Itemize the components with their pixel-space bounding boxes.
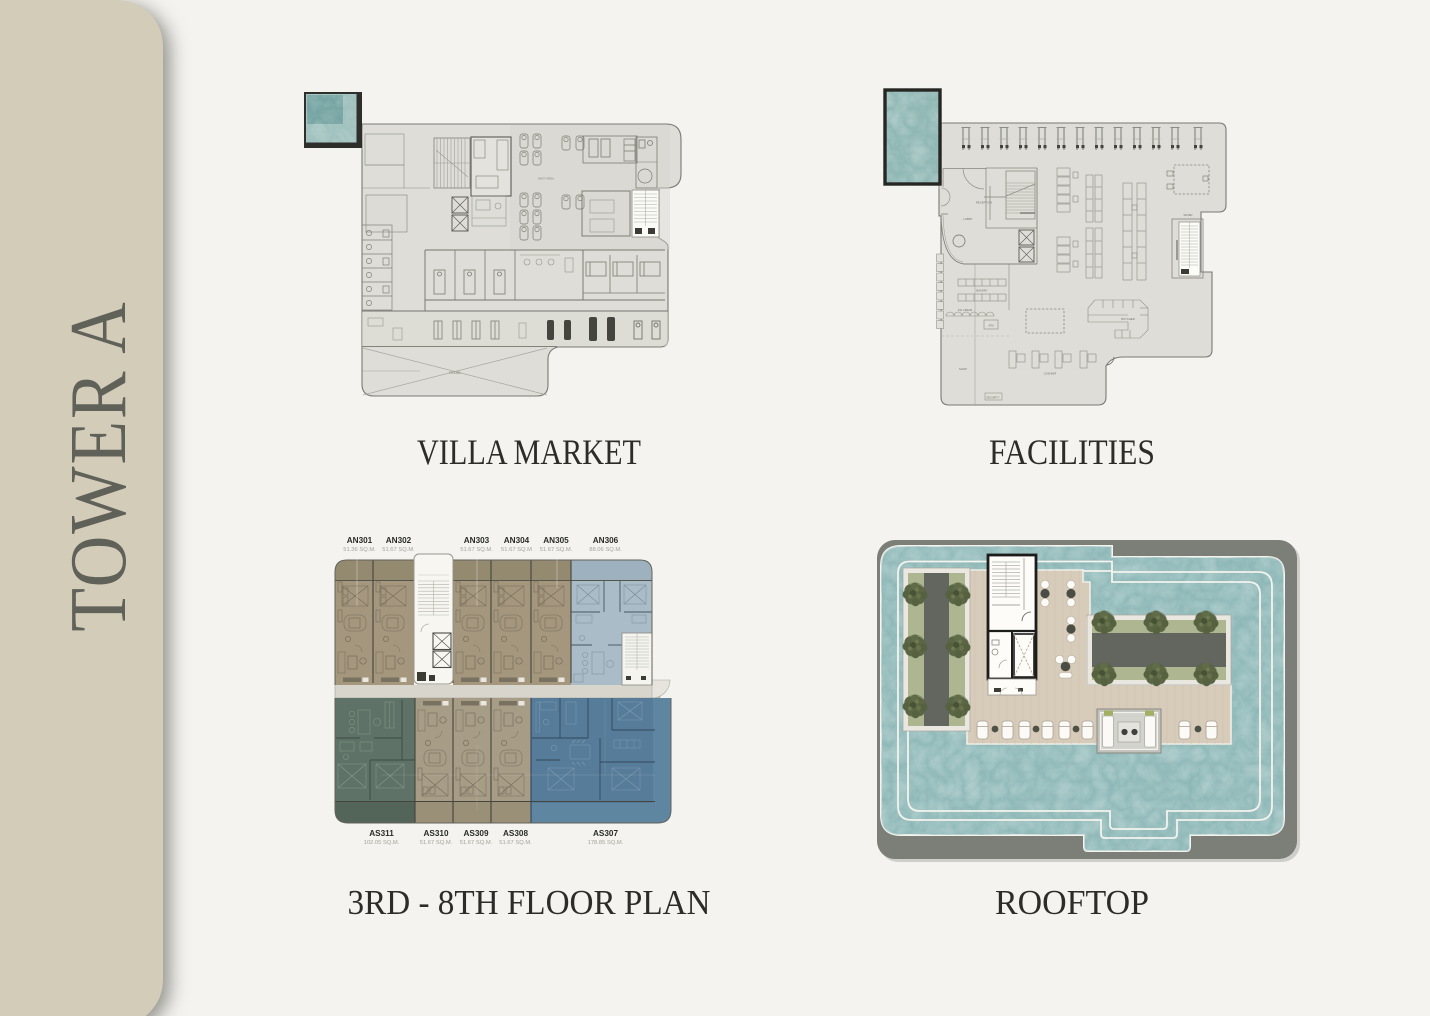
svg-text:RECEPTION: RECEPTION [976, 201, 992, 205]
svg-text:LOBBY: LOBBY [963, 217, 972, 221]
svg-text:ICE CREAM: ICE CREAM [958, 308, 972, 312]
svg-text:88.06 SQ.M.: 88.06 SQ.M. [589, 547, 622, 553]
svg-text:51.67 SQ.M.: 51.67 SQ.M. [420, 840, 453, 846]
svg-text:SHOP: SHOP [959, 367, 967, 371]
svg-text:51.67 SQ.M: 51.67 SQ.M [501, 547, 532, 553]
svg-text:CASHIER: CASHIER [1044, 372, 1056, 376]
svg-text:VILLA MARKET: VILLA MARKET [417, 432, 641, 472]
svg-text:AN306: AN306 [593, 536, 619, 545]
svg-text:ROAD: ROAD [449, 370, 461, 375]
svg-text:AS307: AS307 [593, 829, 618, 838]
svg-text:AN303: AN303 [464, 536, 490, 545]
svg-text:AN301: AN301 [347, 536, 373, 545]
svg-text:51.67 SQ.M.: 51.67 SQ.M. [499, 840, 532, 846]
svg-text:51.67 SQ.M.: 51.67 SQ.M. [460, 547, 493, 553]
svg-text:51.67 SQ.M.: 51.67 SQ.M. [540, 547, 573, 553]
svg-text:AS310: AS310 [423, 829, 448, 838]
svg-text:AS311: AS311 [369, 829, 394, 838]
svg-text:51.67 SQ.M.: 51.67 SQ.M. [382, 547, 415, 553]
svg-text:3RD - 8TH FLOOR PLAN: 3RD - 8TH FLOOR PLAN [348, 883, 711, 922]
svg-text:AS308: AS308 [503, 829, 528, 838]
svg-text:102.05 SQ.M.: 102.05 SQ.M. [364, 840, 400, 846]
svg-text:51.36 SQ.M.: 51.36 SQ.M. [343, 547, 376, 553]
svg-text:AS309: AS309 [463, 829, 488, 838]
svg-text:WATER: WATER [1183, 213, 1192, 217]
svg-text:51.67 SQ.M.: 51.67 SQ.M. [460, 840, 493, 846]
svg-text:ATM: ATM [988, 324, 993, 328]
svg-text:ROOFTOP: ROOFTOP [995, 883, 1149, 922]
svg-text:BUTCHER: BUTCHER [1121, 317, 1135, 321]
svg-text:FACILITIES: FACILITIES [989, 432, 1155, 472]
svg-text:178.85 SQ.M.: 178.85 SQ.M. [588, 840, 624, 846]
svg-text:SECURITY: SECURITY [986, 396, 999, 400]
svg-text:BAKERY: BAKERY [976, 289, 987, 293]
svg-text:AN304: AN304 [504, 536, 530, 545]
svg-text:AN305: AN305 [543, 536, 569, 545]
svg-text:AN302: AN302 [386, 536, 412, 545]
svg-text:WAIT AREA: WAIT AREA [538, 177, 554, 181]
